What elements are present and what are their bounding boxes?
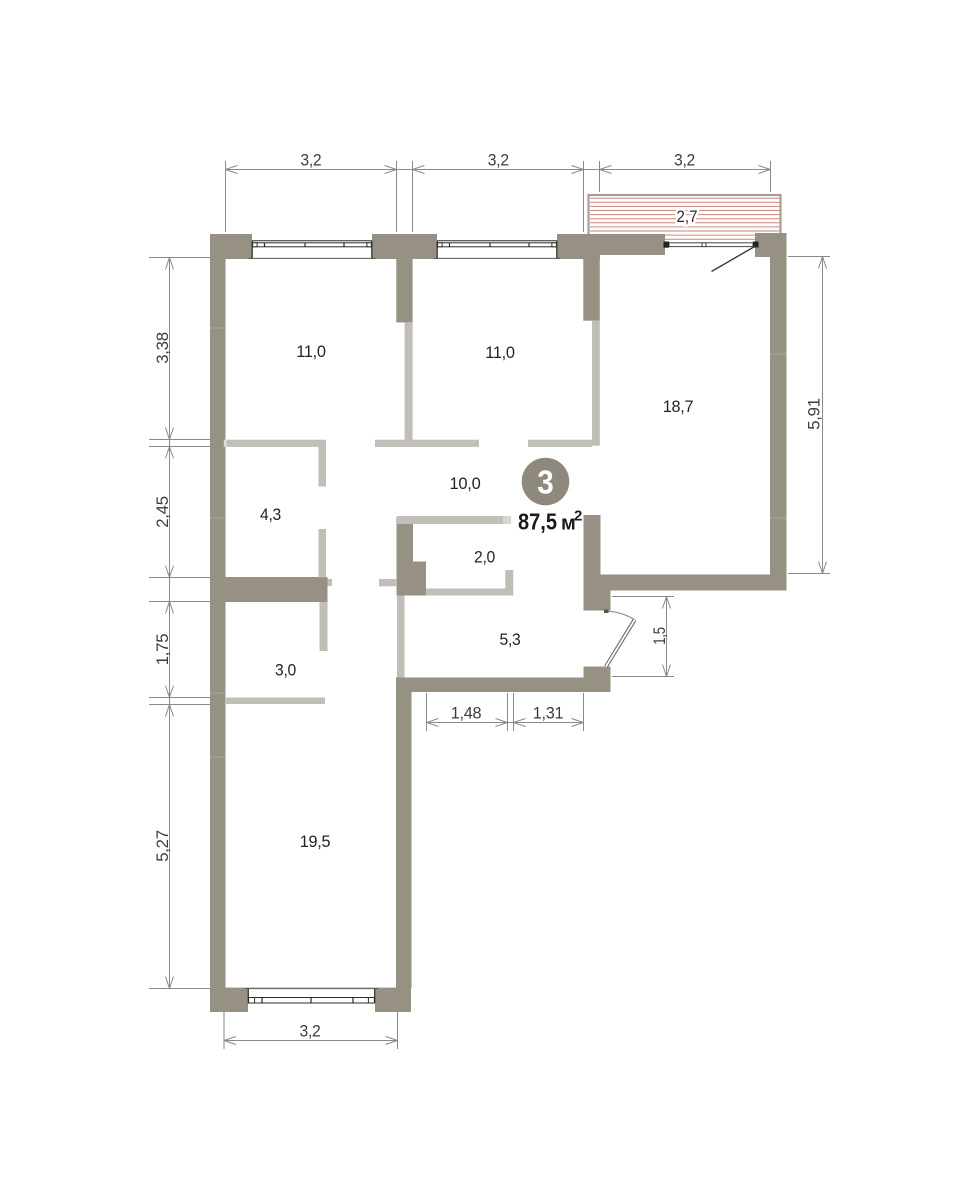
svg-text:18,7: 18,7	[663, 397, 694, 416]
svg-text:87,5: 87,5	[518, 509, 557, 535]
svg-text:3,0: 3,0	[275, 661, 296, 680]
svg-text:1,75: 1,75	[153, 634, 172, 666]
svg-text:3,2: 3,2	[674, 151, 695, 170]
svg-text:3,2: 3,2	[488, 151, 509, 170]
svg-text:4,3: 4,3	[260, 505, 281, 524]
svg-text:2: 2	[574, 508, 582, 525]
svg-text:5,91: 5,91	[805, 398, 824, 430]
svg-text:11,0: 11,0	[296, 342, 326, 361]
svg-text:3,38: 3,38	[153, 332, 172, 364]
svg-text:1,31: 1,31	[533, 704, 564, 723]
svg-text:3,2: 3,2	[300, 1022, 321, 1041]
svg-text:3: 3	[537, 464, 554, 501]
svg-text:3,2: 3,2	[300, 151, 321, 170]
svg-text:5,3: 5,3	[500, 630, 521, 649]
svg-text:1,5: 1,5	[650, 627, 669, 645]
svg-text:19,5: 19,5	[300, 832, 331, 851]
svg-text:2,45: 2,45	[153, 496, 172, 528]
svg-text:11,0: 11,0	[485, 343, 515, 362]
svg-text:1,48: 1,48	[451, 704, 482, 723]
svg-text:5,27: 5,27	[153, 830, 172, 862]
svg-text:2,0: 2,0	[474, 548, 495, 567]
svg-text:10,0: 10,0	[450, 474, 481, 493]
svg-text:2,7: 2,7	[677, 207, 698, 226]
